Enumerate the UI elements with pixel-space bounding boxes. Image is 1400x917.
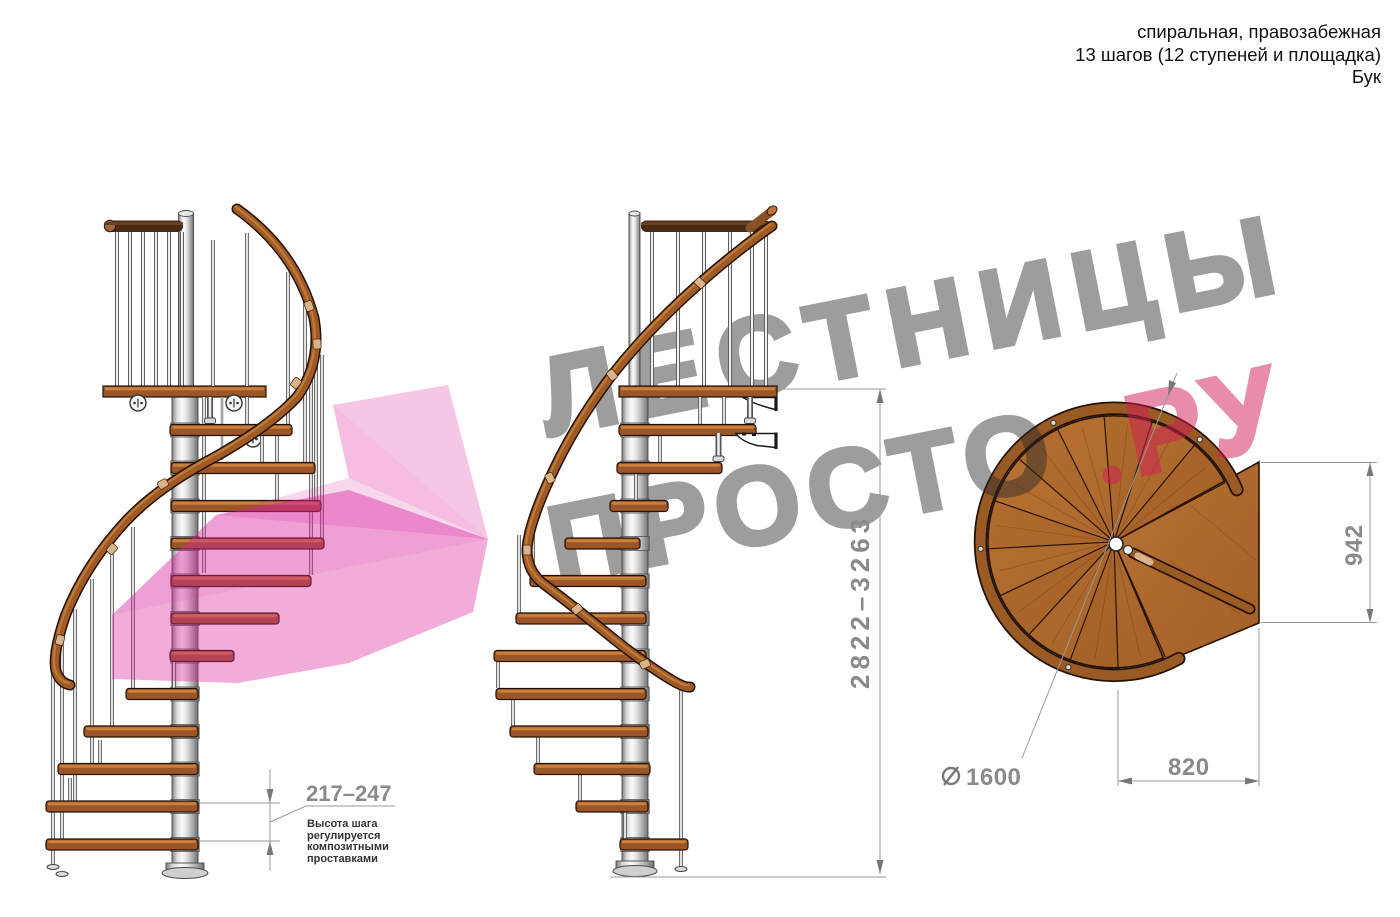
svg-text:Высота шага: Высота шага [307, 818, 378, 830]
svg-text:217–247: 217–247 [306, 781, 392, 806]
svg-text:композитными: композитными [307, 841, 389, 853]
svg-text:проставками: проставками [307, 853, 378, 865]
svg-text:Бук: Бук [1352, 66, 1382, 87]
svg-text:13 шагов (12 ступеней и площад: 13 шагов (12 ступеней и площадка) [1075, 44, 1381, 65]
svg-text:спиральная, правозабежная: спиральная, правозабежная [1137, 21, 1381, 42]
svg-text:1600: 1600 [966, 764, 1021, 791]
svg-text:820: 820 [1168, 754, 1210, 781]
svg-text:2822–3263: 2822–3263 [845, 514, 875, 689]
svg-text:942: 942 [1341, 524, 1368, 566]
